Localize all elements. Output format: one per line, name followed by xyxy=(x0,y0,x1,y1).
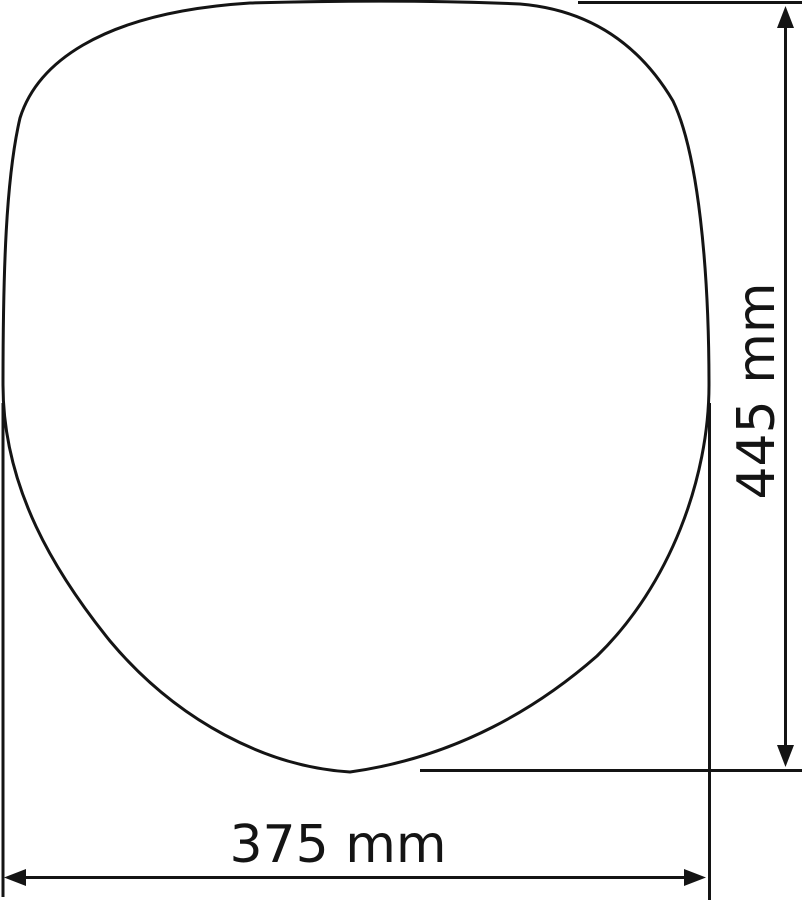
arrowhead-up-icon xyxy=(777,6,794,28)
arrowhead-right-icon xyxy=(684,869,706,886)
diagram-canvas xyxy=(0,0,802,900)
width-dimension-label: 375 mm xyxy=(229,819,446,871)
arrowhead-down-icon xyxy=(777,745,794,767)
dimension-diagram: 445 mm 375 mm xyxy=(0,0,802,900)
height-dimension-label: 445 mm xyxy=(731,282,783,499)
seat-outline xyxy=(3,1,709,772)
arrowhead-left-icon xyxy=(4,869,26,886)
